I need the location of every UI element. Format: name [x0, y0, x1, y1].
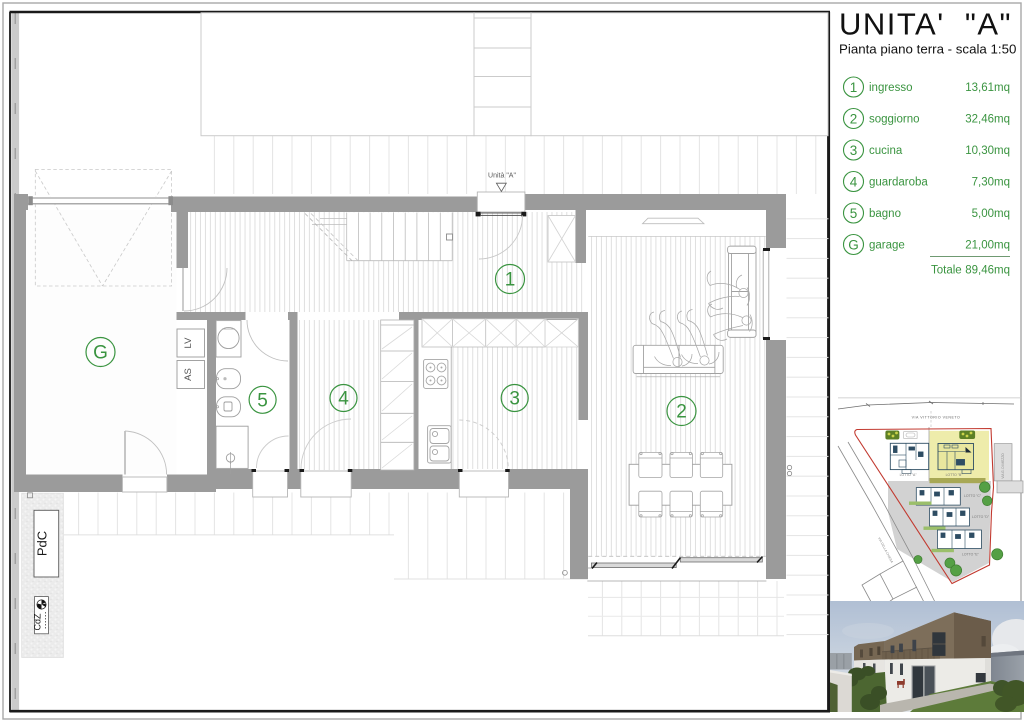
- svg-text:1: 1: [505, 270, 516, 291]
- svg-text:1: 1: [850, 80, 858, 95]
- svg-text:3: 3: [850, 143, 858, 158]
- svg-text:10,30mq: 10,30mq: [965, 145, 1010, 157]
- svg-text:LOTTO "A": LOTTO "A": [900, 473, 918, 477]
- svg-text:4: 4: [338, 389, 349, 410]
- svg-text:4: 4: [850, 174, 858, 189]
- svg-text:2: 2: [850, 111, 858, 126]
- svg-text:Totale: Totale: [931, 265, 962, 277]
- svg-text:G: G: [93, 343, 108, 364]
- svg-text:UNITA' "A": UNITA' "A": [839, 7, 1012, 42]
- svg-text:3: 3: [509, 389, 520, 410]
- svg-text:guardaroba: guardaroba: [869, 176, 928, 188]
- svg-text:Pianta piano terra - scala 1:5: Pianta piano terra - scala 1:50: [839, 42, 1016, 57]
- svg-text:VIA VITTORIO VENETO: VIA VITTORIO VENETO: [912, 416, 961, 420]
- svg-text:bagno: bagno: [869, 208, 901, 220]
- svg-text:89,46mq: 89,46mq: [965, 265, 1010, 277]
- svg-text:2: 2: [676, 402, 687, 423]
- svg-text:G: G: [848, 237, 859, 252]
- svg-text:32,46mq: 32,46mq: [965, 113, 1010, 125]
- svg-text:CdZ: CdZ: [33, 613, 43, 631]
- svg-text:AS: AS: [183, 368, 194, 381]
- svg-text:Unità "A": Unità "A": [488, 173, 516, 180]
- svg-text:LOTTO "E": LOTTO "E": [962, 553, 980, 557]
- svg-text:LOTTO "B": LOTTO "B": [946, 473, 964, 477]
- svg-text:soggiorno: soggiorno: [869, 113, 920, 125]
- svg-text:21,00mq: 21,00mq: [965, 239, 1010, 251]
- svg-text:7,30mq: 7,30mq: [972, 176, 1010, 188]
- svg-text:LOTTO "D": LOTTO "D": [972, 515, 990, 519]
- svg-text:5: 5: [257, 390, 268, 411]
- svg-text:LOTTO "C": LOTTO "C": [964, 494, 982, 498]
- svg-text:LV: LV: [183, 337, 194, 349]
- svg-text:cucina: cucina: [869, 145, 903, 157]
- svg-text:VIA G. DI MEZZO: VIA G. DI MEZZO: [1001, 453, 1005, 479]
- svg-text:ingresso: ingresso: [869, 82, 912, 94]
- svg-text:PdC: PdC: [35, 531, 50, 556]
- svg-text:garage: garage: [869, 239, 905, 251]
- svg-text:5,00mq: 5,00mq: [972, 208, 1010, 220]
- svg-text:5: 5: [850, 206, 858, 221]
- svg-text:13,61mq: 13,61mq: [965, 82, 1010, 94]
